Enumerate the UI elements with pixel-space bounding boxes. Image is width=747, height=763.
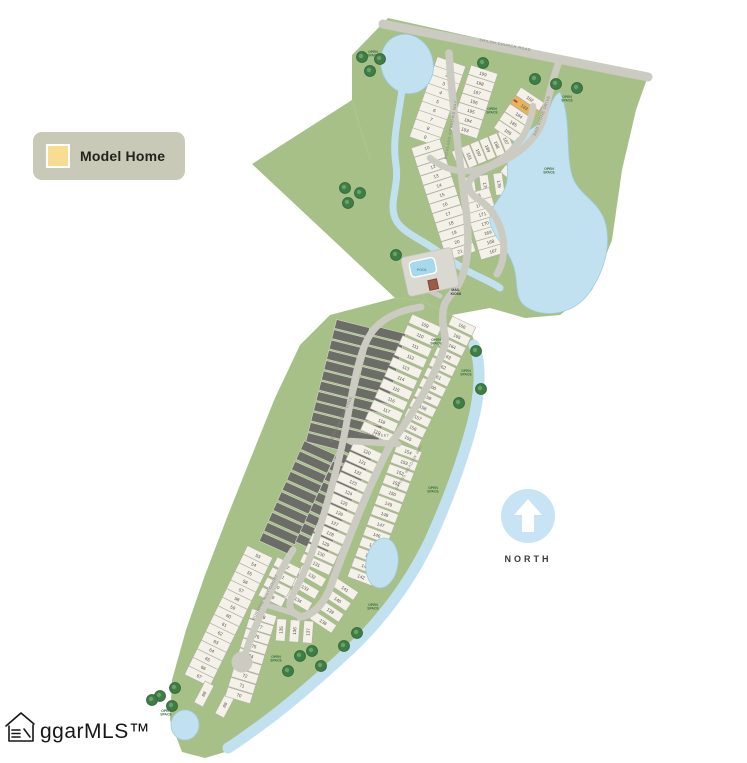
tree-icon [530, 74, 541, 85]
model-home-swatch [46, 144, 70, 168]
tree-icon [352, 628, 363, 639]
tree-icon [572, 83, 583, 94]
tree-icon [365, 66, 376, 77]
legend: Model Home [33, 132, 185, 180]
tree-icon [339, 641, 350, 652]
open-space-label: OPENSPACE [367, 50, 379, 58]
open-space-label: OPENSPACE [543, 167, 555, 175]
mls-watermark-text: ggarMLS™ [40, 721, 150, 744]
pond-tip [171, 710, 199, 740]
tree-icon [391, 250, 402, 261]
mail-kiosk-label: MAIL KIOSK [451, 288, 462, 296]
tree-icon [454, 398, 465, 409]
lot: 137 [302, 621, 313, 644]
tree-icon [478, 58, 489, 69]
tree-icon [316, 661, 327, 672]
house-logo-icon [4, 710, 38, 744]
open-space-label: OPENSPACE [430, 338, 442, 346]
north-label: NORTH [498, 554, 558, 564]
tree-icon [551, 79, 562, 90]
open-space-label: OPENSPACE [367, 603, 379, 611]
north-arrow-icon [500, 488, 556, 544]
pool-label: POOL [417, 268, 428, 272]
open-space-label: OPENSPACE [270, 655, 282, 663]
open-space-label: OPENSPACE [160, 709, 172, 717]
site-plan-map: 1234567891011121314151617181920211991981… [0, 0, 747, 763]
tree-icon [471, 346, 482, 357]
tree-icon [147, 695, 158, 706]
model-home-label: Model Home [80, 148, 165, 164]
lot: 135 [275, 619, 286, 642]
lot-number: 136 [292, 627, 298, 635]
open-space-label: OPENSPACE [427, 486, 439, 494]
road-main-street [350, 441, 398, 444]
open-space-label: OPENSPACE [561, 95, 573, 103]
open-space-label: OPENSPACE [460, 369, 472, 377]
mls-watermark: ggarMLS™ [4, 710, 150, 744]
site-plan-image: 1234567891011121314151617181920211991981… [0, 0, 747, 763]
tree-icon [355, 188, 366, 199]
lot-number: 137 [305, 628, 311, 636]
mail-kiosk-building [428, 279, 439, 291]
cul-de-sac-bulb [232, 652, 253, 673]
tree-icon [283, 666, 294, 677]
tree-icon [476, 384, 487, 395]
lot: 136 [289, 620, 300, 643]
compass-north: NORTH [498, 488, 558, 564]
tree-icon [307, 646, 318, 657]
lot-number: 135 [278, 626, 284, 634]
tree-icon [357, 52, 368, 63]
tree-icon [295, 651, 306, 662]
tree-icon [170, 683, 181, 694]
open-space-label: OPENSPACE [486, 107, 498, 115]
tree-icon [340, 183, 351, 194]
tree-icon [343, 198, 354, 209]
